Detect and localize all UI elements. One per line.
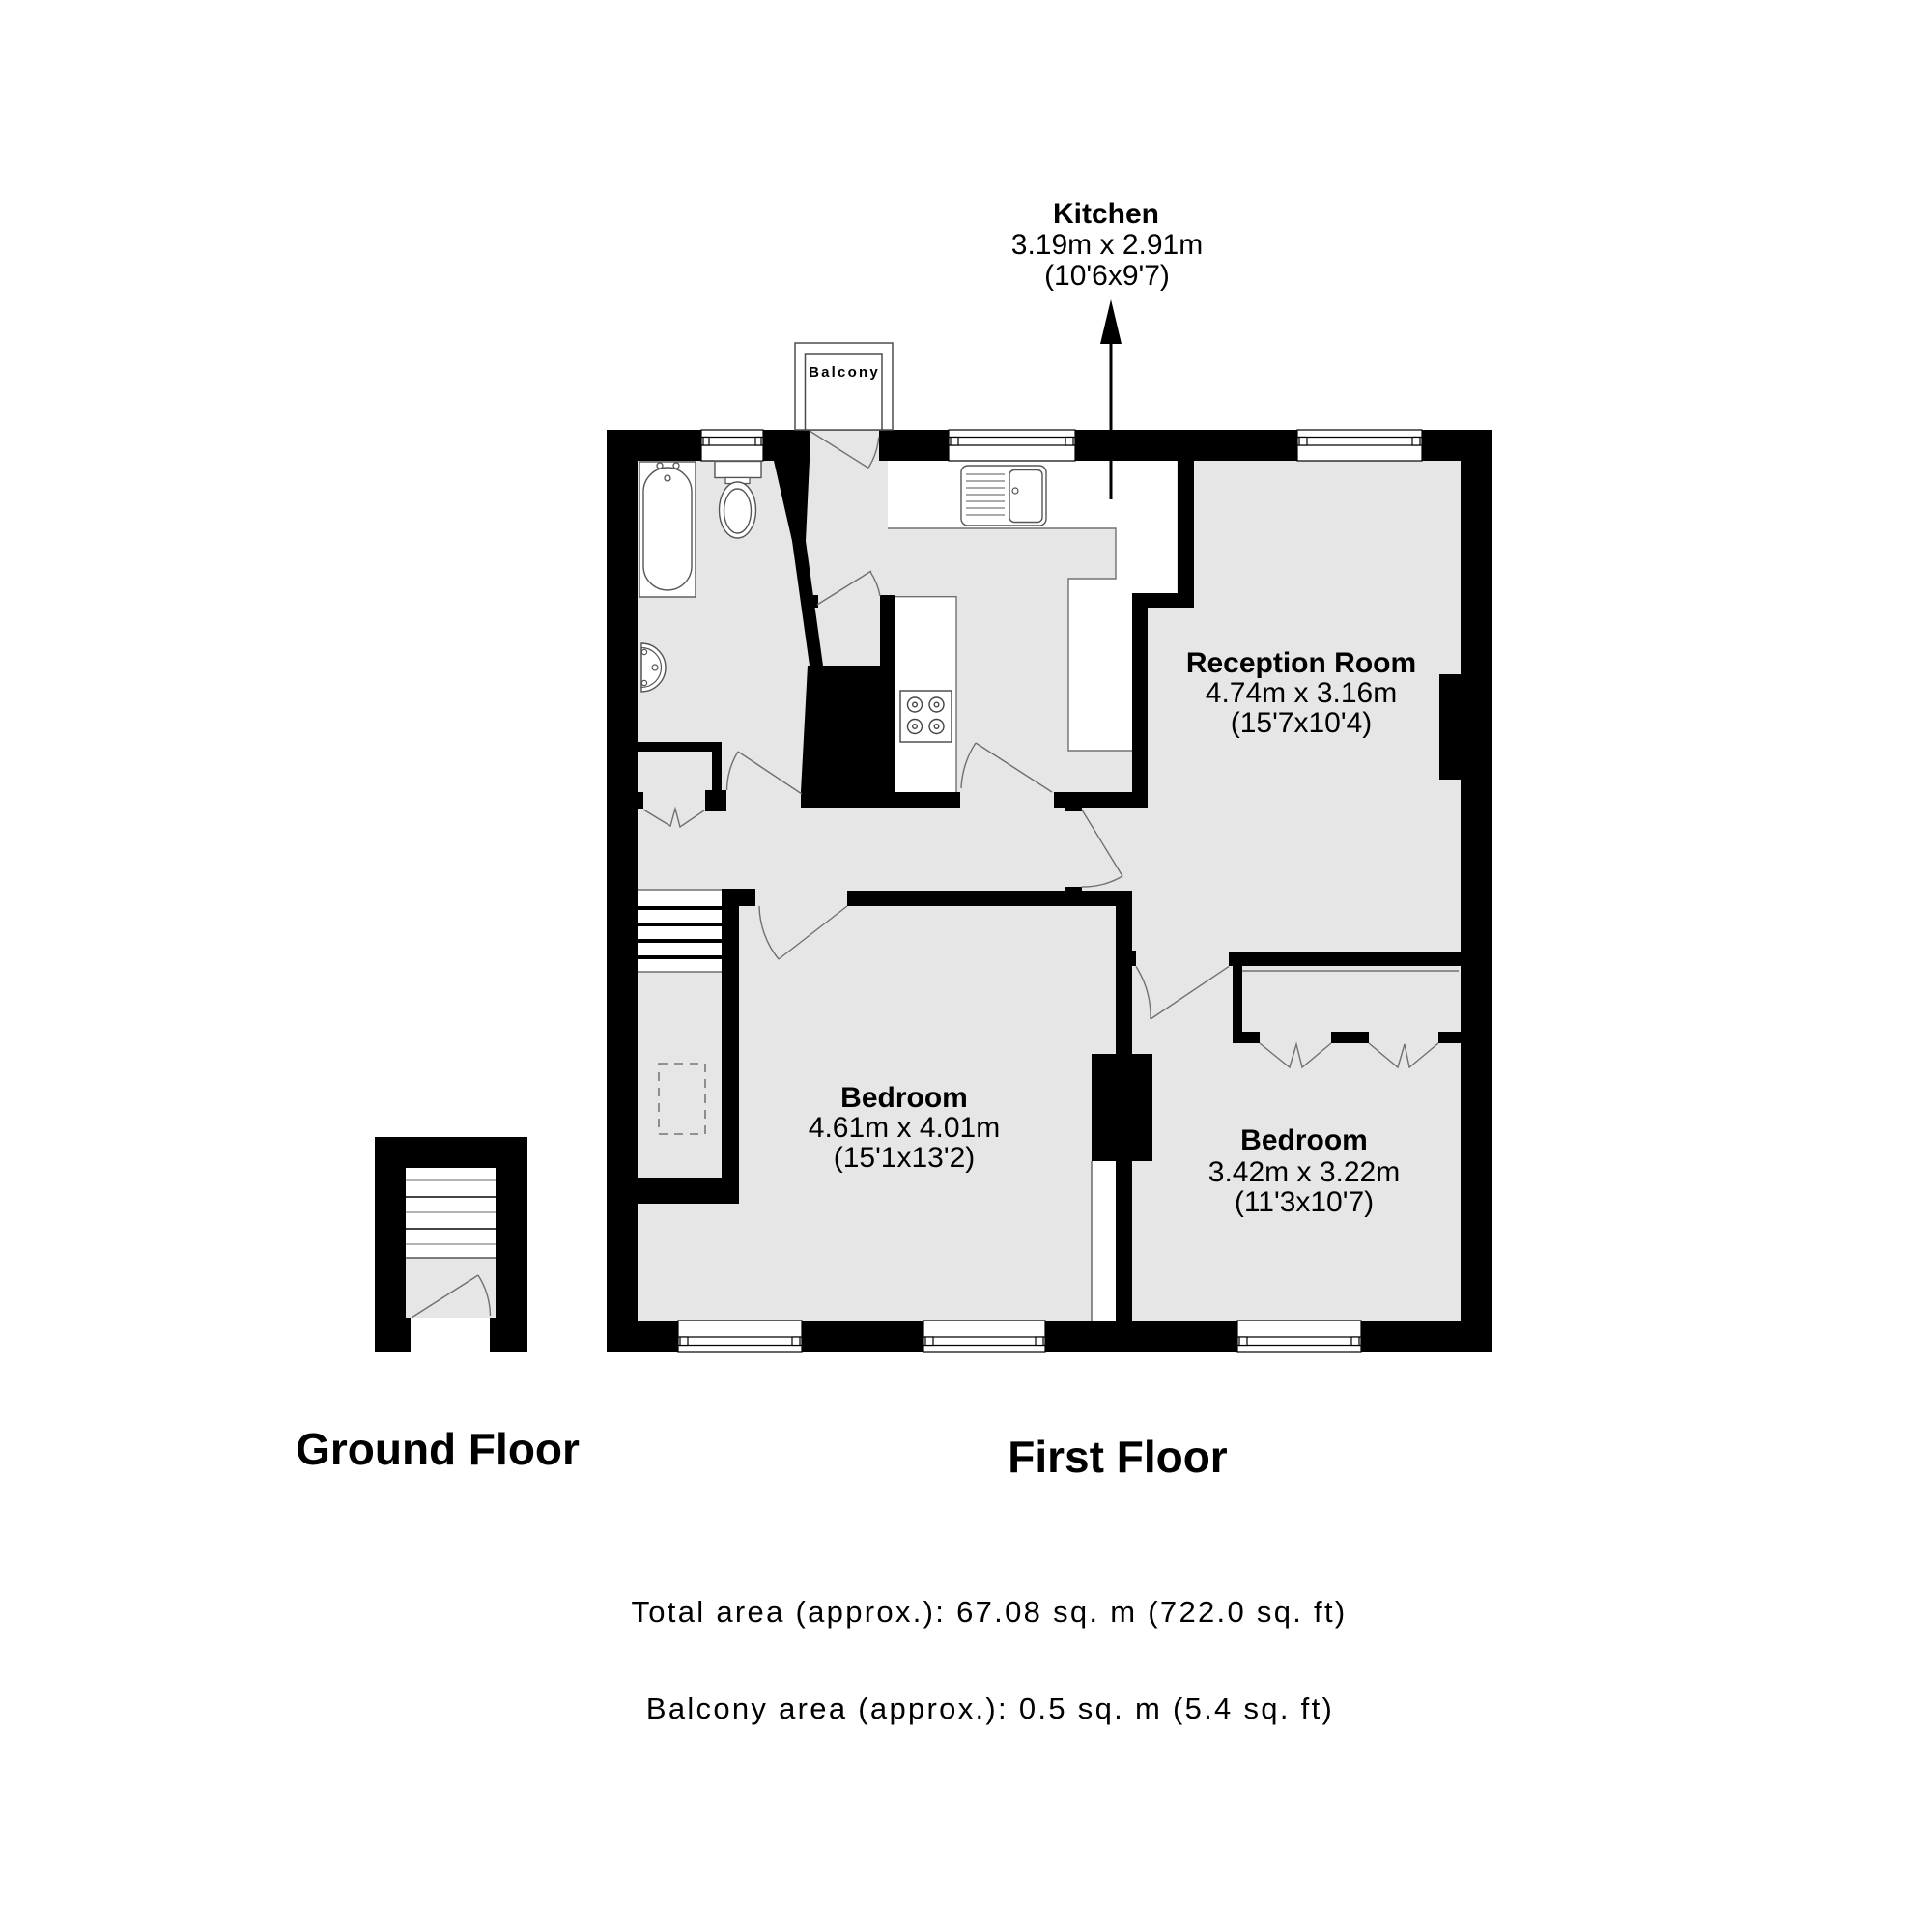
svg-text:3.42m x 3.22m: 3.42m x 3.22m — [1208, 1156, 1400, 1188]
svg-text:(15'1x13'2): (15'1x13'2) — [834, 1142, 976, 1174]
svg-text:First Floor: First Floor — [1008, 1432, 1228, 1482]
svg-text:Bedroom: Bedroom — [840, 1082, 968, 1114]
svg-text:Bedroom: Bedroom — [1240, 1124, 1368, 1156]
svg-text:Balcony: Balcony — [809, 364, 880, 381]
svg-text:Total area (approx.): 67.08 sq: Total area (approx.): 67.08 sq. m (722.0… — [631, 1595, 1347, 1629]
svg-text:Balcony area (approx.): 0.5 sq: Balcony area (approx.): 0.5 sq. m (5.4 s… — [646, 1691, 1334, 1725]
svg-text:(11'3x10'7): (11'3x10'7) — [1235, 1186, 1374, 1218]
svg-text:Kitchen: Kitchen — [1053, 198, 1159, 230]
svg-text:Reception Room: Reception Room — [1186, 647, 1416, 679]
svg-text:(15'7x10'4): (15'7x10'4) — [1231, 707, 1373, 739]
svg-text:Ground Floor: Ground Floor — [296, 1424, 580, 1474]
svg-text:4.61m x 4.01m: 4.61m x 4.01m — [809, 1112, 1000, 1144]
svg-text:4.74m x 3.16m: 4.74m x 3.16m — [1206, 677, 1397, 709]
svg-text:3.19m x 2.91m: 3.19m x 2.91m — [1011, 229, 1203, 261]
svg-text:(10'6x9'7): (10'6x9'7) — [1044, 260, 1170, 292]
